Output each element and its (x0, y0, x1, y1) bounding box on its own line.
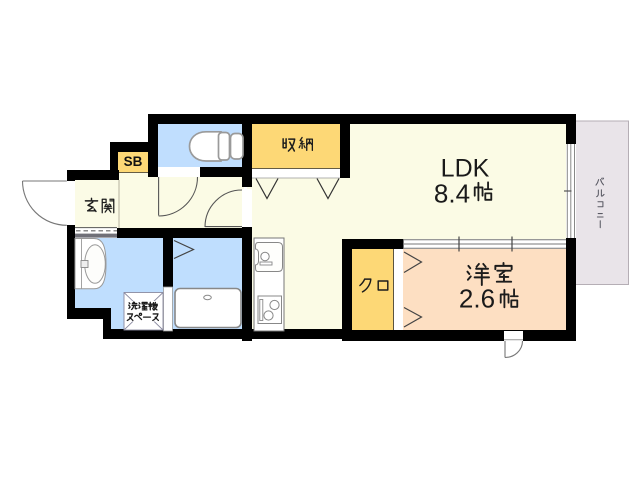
svg-text:2.6: 2.6 (459, 284, 495, 314)
svg-text:SB: SB (124, 154, 143, 169)
svg-text:8.4: 8.4 (434, 179, 470, 209)
